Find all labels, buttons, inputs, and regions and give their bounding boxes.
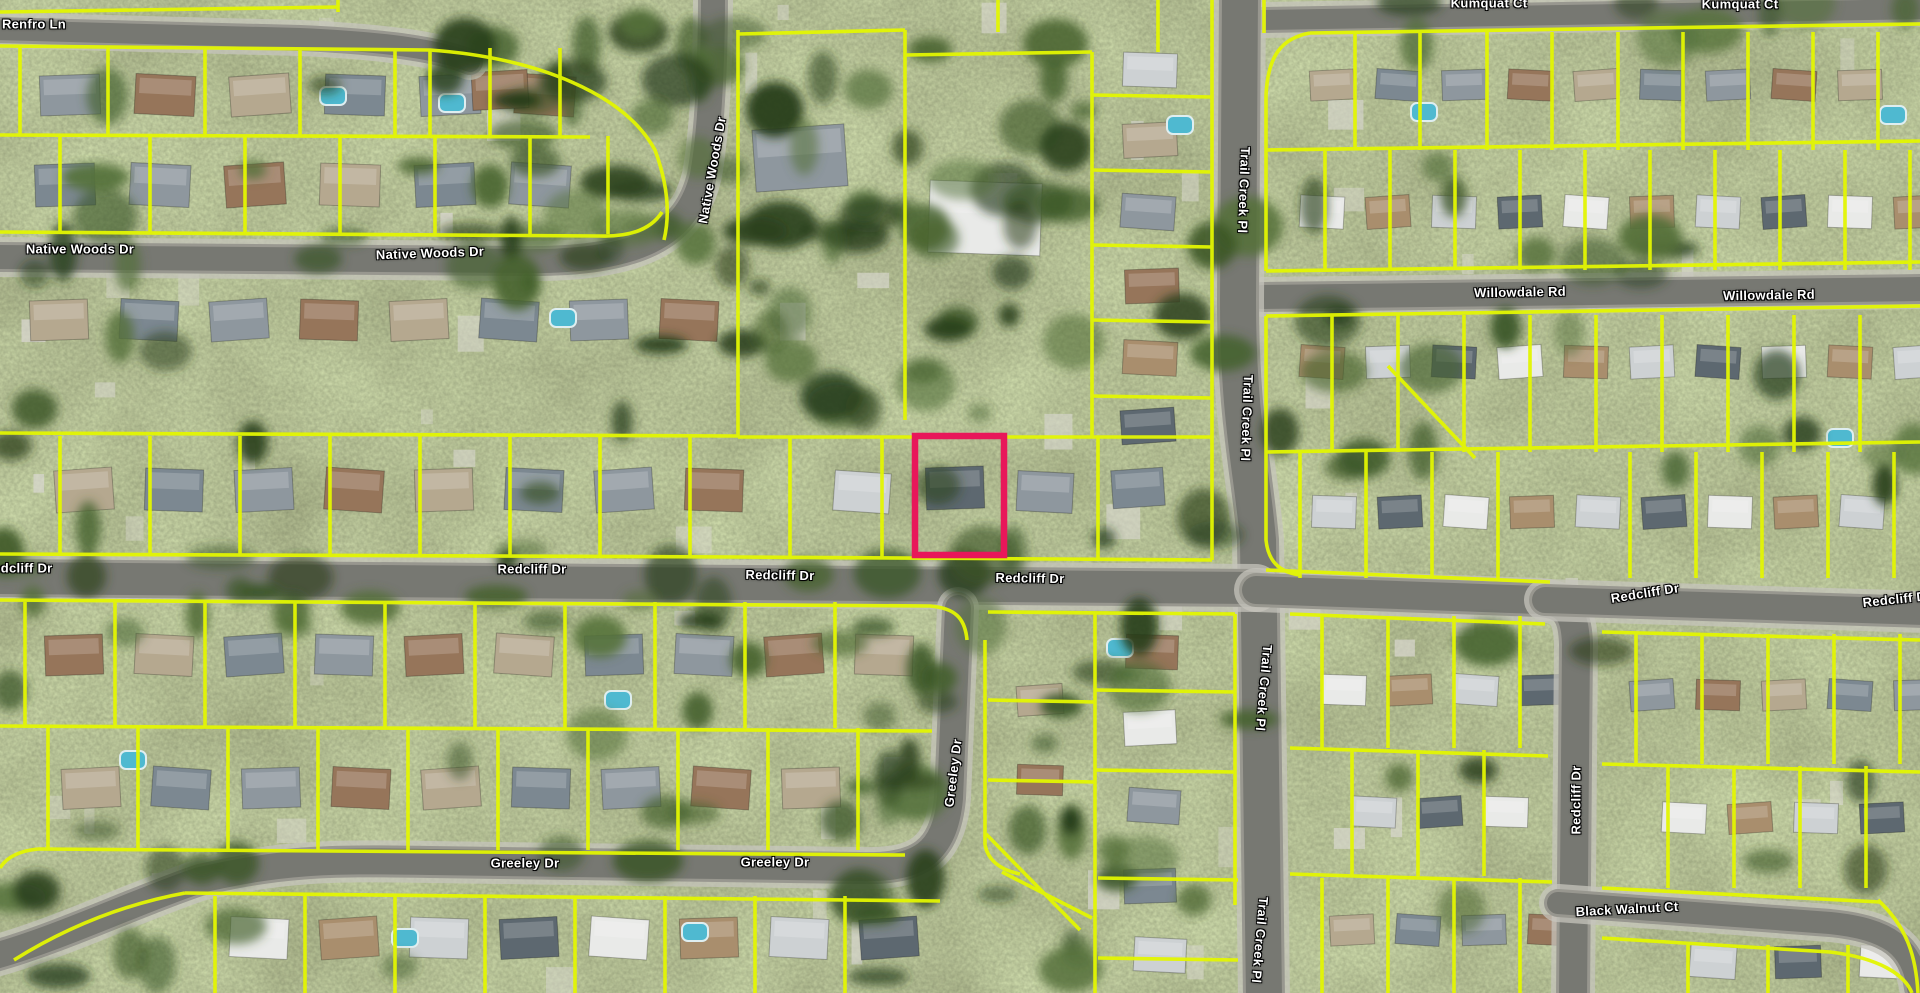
parcel-line[interactable] xyxy=(1092,396,1212,398)
parcel-line[interactable] xyxy=(1092,170,1212,172)
parcel-line[interactable] xyxy=(1092,320,1212,322)
parcel-line[interactable] xyxy=(1092,95,1212,97)
aerial-imagery xyxy=(0,0,1920,993)
parcel-line[interactable] xyxy=(1095,770,1235,772)
parcel-line[interactable] xyxy=(1092,245,1212,247)
parcel-line[interactable] xyxy=(1095,690,1235,692)
parcel-line[interactable] xyxy=(988,612,1235,614)
parcel-line[interactable] xyxy=(1098,878,1238,880)
parcel-line[interactable] xyxy=(0,135,590,137)
parcel-line[interactable] xyxy=(1098,958,1238,960)
map-canvas[interactable]: Renfro Ln Kumquat Ct Kumquat Ct Native W… xyxy=(0,0,1920,993)
parcel-line[interactable] xyxy=(988,700,1095,702)
parcel-line[interactable] xyxy=(988,780,1095,782)
